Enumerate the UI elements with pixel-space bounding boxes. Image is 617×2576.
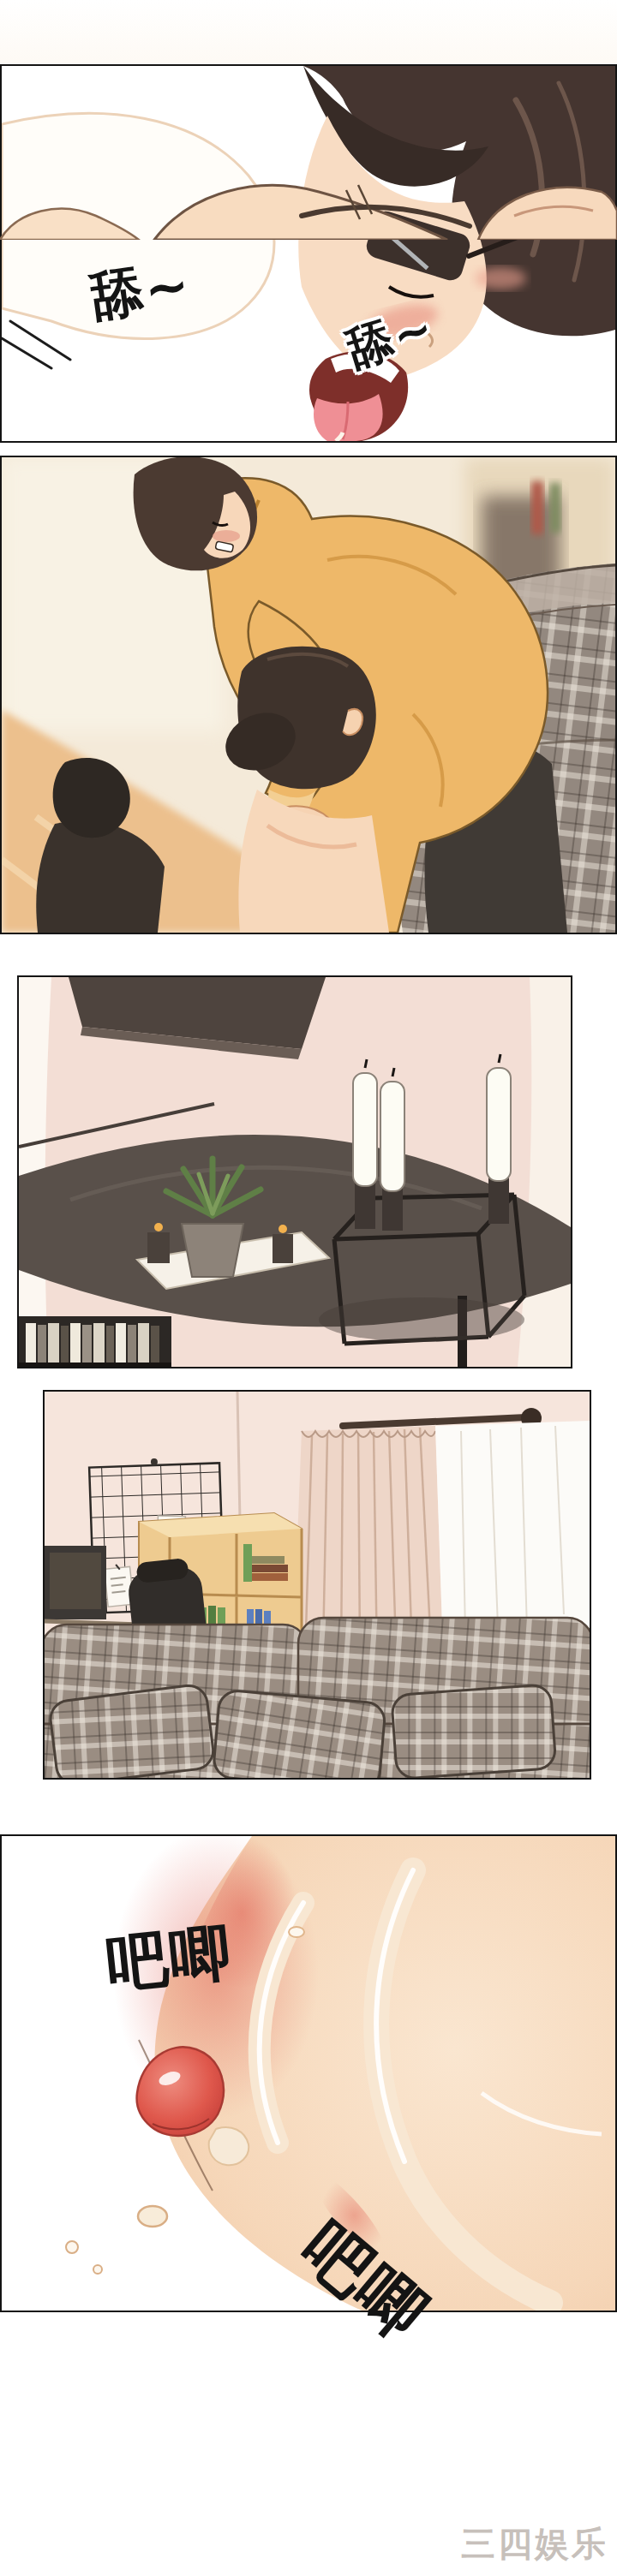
- sfx-lick-1: 舔~: [87, 258, 194, 325]
- comic-panel-3: [17, 975, 572, 1368]
- bookshelf: [19, 1316, 171, 1367]
- head-top: [154, 185, 447, 240]
- comic-panel-2: [0, 456, 617, 934]
- shoulder-right: [478, 188, 617, 240]
- shoulder-bump-left: [0, 209, 139, 240]
- comic-panel-4: [43, 1390, 591, 1780]
- cube-shadow: [319, 1297, 524, 1342]
- panel-4-art: [45, 1392, 590, 1778]
- blush: [475, 267, 526, 289]
- panel-5-art: [2, 1836, 615, 2311]
- panel-6-art: [0, 0, 617, 240]
- plaid-sofa: [45, 1618, 590, 1778]
- panel-2-art: [2, 457, 615, 933]
- figure-silhouette: [0, 185, 617, 240]
- comic-strip-page: 舔~ 舔~: [0, 0, 617, 2576]
- comic-panel-6: 三四娱乐: [0, 0, 617, 240]
- plant-pot: [182, 1224, 243, 1277]
- fluid-glob: [209, 2127, 249, 2165]
- watermark-text: 三四娱乐: [461, 2520, 608, 2567]
- memo-note: [104, 1563, 134, 1607]
- sfx-smack-1: 吧唧: [104, 1920, 237, 1995]
- plaid-pillow: [213, 1690, 386, 1778]
- plaid-pillow: [392, 1685, 556, 1778]
- panel-3-art: [19, 977, 571, 1367]
- motion-lines: [2, 321, 70, 368]
